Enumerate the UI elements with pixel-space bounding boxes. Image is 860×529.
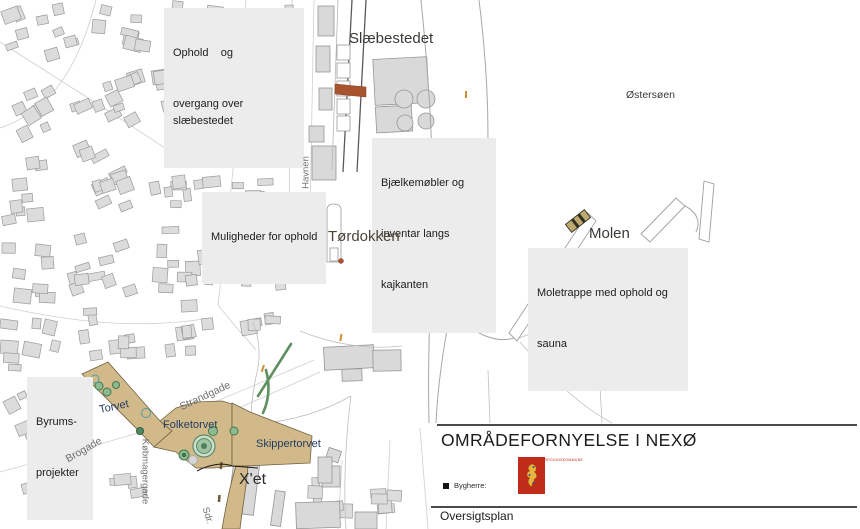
client-bullet-square — [443, 483, 449, 489]
building — [89, 350, 102, 361]
building — [152, 267, 168, 282]
client-label: Bygherre: — [454, 481, 487, 490]
plan-title: OMRÅDEFORNYELSE I NEXØ — [441, 430, 697, 451]
building — [134, 39, 150, 52]
annotation-moletrappe: Moletrappe med ophold og sauna — [528, 248, 688, 391]
building — [95, 195, 112, 209]
building — [74, 233, 87, 245]
building — [41, 85, 56, 99]
building — [24, 88, 38, 101]
building — [258, 178, 274, 185]
building — [17, 391, 27, 401]
overview-plan: Ophold og overgang over slæbestedet Muli… — [0, 0, 860, 529]
building — [78, 330, 89, 345]
building — [44, 47, 60, 62]
client-row: Bygherre: — [443, 481, 487, 490]
building — [371, 494, 387, 504]
building — [194, 180, 204, 190]
slipway — [332, 0, 366, 172]
bornholm-logo: BORNHOLMS REGIONSKOMMUNE — [518, 457, 545, 462]
annotation-line: sauna — [537, 336, 679, 353]
building — [181, 300, 197, 313]
building — [73, 98, 92, 114]
building — [75, 262, 91, 272]
building — [118, 200, 132, 212]
building — [16, 125, 33, 143]
building — [22, 341, 42, 358]
folketorvet-fountain — [193, 435, 215, 457]
building — [63, 35, 77, 48]
plan-type: Oversigtsplan — [440, 509, 513, 523]
building — [10, 200, 23, 214]
building — [185, 274, 197, 286]
label-skippertorvet: Skippertorvet — [256, 438, 321, 450]
building — [3, 353, 19, 363]
building — [162, 226, 179, 233]
building — [123, 284, 138, 297]
building — [118, 336, 129, 349]
building — [168, 260, 179, 267]
title-block-divider-bottom — [431, 506, 857, 508]
building — [12, 268, 26, 279]
building — [115, 75, 135, 92]
building — [265, 316, 281, 324]
building — [92, 19, 106, 34]
annotation-muligheder: Muligheder for ophold — [202, 192, 326, 284]
building — [12, 178, 28, 192]
building — [308, 485, 323, 498]
building — [42, 319, 58, 336]
label-oestersoeen: Østersøen — [626, 89, 675, 101]
building — [5, 41, 18, 51]
bornholm-coat-of-arms-icon — [518, 457, 545, 494]
label-xet: X'et — [239, 471, 266, 489]
annotation-line: Ophold og — [173, 45, 295, 62]
building — [74, 273, 89, 285]
annotation-line: Muligheder for ophold — [211, 229, 317, 246]
annotation-line: overgang over slæbestedet — [173, 96, 295, 130]
building — [27, 207, 45, 222]
building — [53, 27, 65, 38]
building — [92, 99, 105, 113]
building — [157, 244, 167, 258]
label-slaebestedet: Slæbestedet — [349, 30, 433, 47]
building — [164, 187, 173, 198]
building — [83, 308, 97, 316]
building — [35, 244, 51, 257]
building — [149, 181, 161, 195]
building — [40, 122, 51, 133]
building — [171, 201, 182, 208]
building — [32, 318, 41, 329]
title-block-divider-top — [437, 424, 857, 426]
building — [26, 156, 41, 170]
building — [3, 396, 21, 414]
building — [15, 27, 29, 40]
annotation-ophold-overgang: Ophold og overgang over slæbestedet — [164, 8, 304, 168]
annotation-line: kajkanten — [381, 277, 487, 294]
building — [98, 255, 114, 266]
building — [41, 256, 54, 269]
building — [0, 340, 18, 354]
building — [124, 112, 141, 128]
building — [165, 344, 176, 358]
annotation-line: Byrums- — [36, 414, 84, 431]
building — [201, 318, 213, 330]
building — [113, 239, 129, 252]
building — [131, 15, 142, 23]
label-toerdokken: Tørdokken — [328, 228, 400, 245]
label-havnen: Havnen — [301, 151, 312, 195]
annotation-line: Bjælkemøbler og — [381, 175, 487, 192]
building — [52, 3, 64, 16]
building — [8, 364, 21, 371]
annotation-line: projekter — [36, 465, 84, 482]
building — [386, 490, 401, 502]
building — [172, 175, 186, 189]
building — [182, 325, 192, 338]
title-block: OMRÅDEFORNYELSE I NEXØ Bygherre: BORNHOL… — [430, 424, 860, 529]
building — [22, 193, 33, 202]
annotation-line: Moletrappe med ophold og — [537, 285, 679, 302]
building — [114, 473, 132, 485]
building — [50, 340, 61, 353]
building — [185, 346, 195, 356]
dot-marker — [339, 259, 344, 264]
building — [13, 288, 32, 304]
building — [159, 284, 174, 293]
building — [32, 284, 48, 294]
skippertorvet-area — [232, 403, 312, 466]
label-koebmagergade: Købmagergade — [140, 428, 151, 516]
label-molen: Molen — [589, 225, 630, 242]
building — [103, 81, 113, 92]
building — [232, 183, 243, 189]
label-folketorvet: Folketorvet — [163, 419, 217, 431]
building — [100, 5, 112, 16]
building — [36, 15, 48, 26]
building — [2, 214, 17, 226]
building — [0, 319, 18, 330]
building — [202, 176, 221, 188]
building — [2, 243, 15, 253]
